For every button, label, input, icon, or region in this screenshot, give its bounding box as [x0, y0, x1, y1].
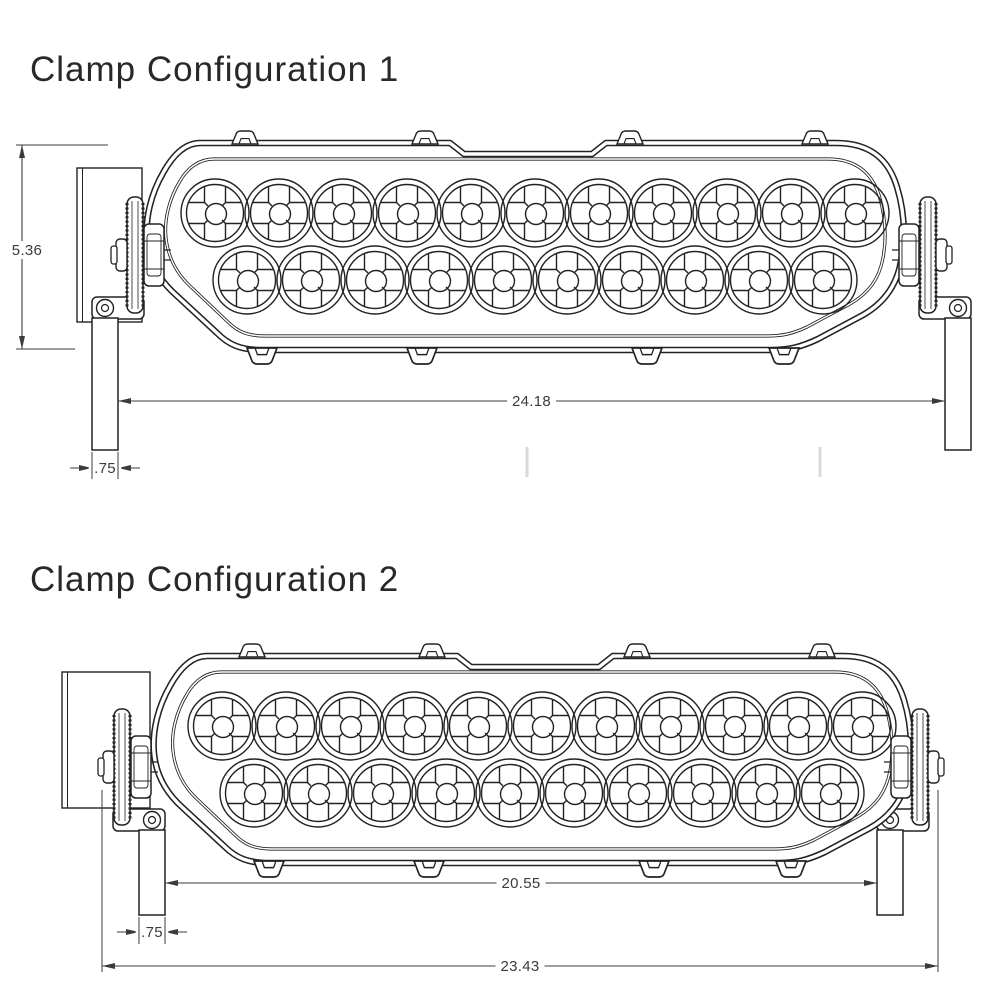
mount-tab	[632, 348, 662, 364]
serrated-strip	[912, 709, 928, 825]
lightbar-technical-drawing: 5.3624.18.7520.55.7523.43	[0, 0, 1000, 1000]
arrowhead	[19, 145, 25, 158]
light-bar	[147, 131, 904, 364]
light-bar	[154, 644, 911, 877]
mount-tab	[776, 861, 806, 877]
arrowhead	[925, 963, 938, 969]
clamp-knob	[928, 751, 939, 783]
mount-tab	[247, 348, 277, 364]
mount-tab	[412, 131, 438, 144]
bracket-bolt	[950, 300, 967, 317]
dimension-post-width: .75	[70, 459, 140, 477]
mount-post	[945, 318, 971, 450]
mount-tab	[802, 131, 828, 144]
arrowhead	[165, 880, 178, 886]
mount-tab	[414, 861, 444, 877]
dimension-line: 23.43	[102, 957, 938, 975]
bracket-bolt	[97, 300, 114, 317]
mount-tab	[769, 348, 799, 364]
dimension-label: 24.18	[512, 393, 551, 410]
mount-post	[877, 830, 903, 915]
mount-tab	[239, 644, 265, 657]
serrated-strip	[920, 197, 936, 313]
arrowhead	[102, 963, 115, 969]
mount-tab	[407, 348, 437, 364]
mount-tab	[809, 644, 835, 657]
dimension-post-width: .75	[117, 923, 187, 941]
bracket-bolt	[144, 812, 161, 829]
dimension-height: 5.36	[7, 145, 48, 349]
serrated-strip	[114, 709, 130, 825]
dimension-label: 5.36	[12, 242, 42, 259]
mount-tab	[254, 861, 284, 877]
dimension-label: .75	[94, 460, 116, 477]
dimension-label: 20.55	[501, 875, 540, 892]
mount-tab	[419, 644, 445, 657]
mount-tab	[639, 861, 669, 877]
arrowhead	[19, 336, 25, 349]
clamp-knob	[116, 239, 127, 271]
mount-tab	[232, 131, 258, 144]
mount-tab	[624, 644, 650, 657]
clamp-bracket	[919, 297, 971, 450]
arrowhead	[118, 398, 131, 404]
arrowhead	[864, 880, 877, 886]
mount-tab	[617, 131, 643, 144]
clamp-knob	[103, 751, 114, 783]
clamp-knob	[936, 239, 947, 271]
mount-post	[139, 830, 165, 915]
arrowhead	[932, 398, 945, 404]
dimension-line: 24.18	[118, 392, 945, 410]
serrated-strip	[127, 197, 143, 313]
mount-post	[92, 318, 118, 450]
clamp-configuration-drawing-page: Clamp Configuration 1 Clamp Configuratio…	[0, 0, 1000, 1000]
dimension-label: 23.43	[500, 958, 539, 975]
dimension-label: .75	[141, 924, 163, 941]
